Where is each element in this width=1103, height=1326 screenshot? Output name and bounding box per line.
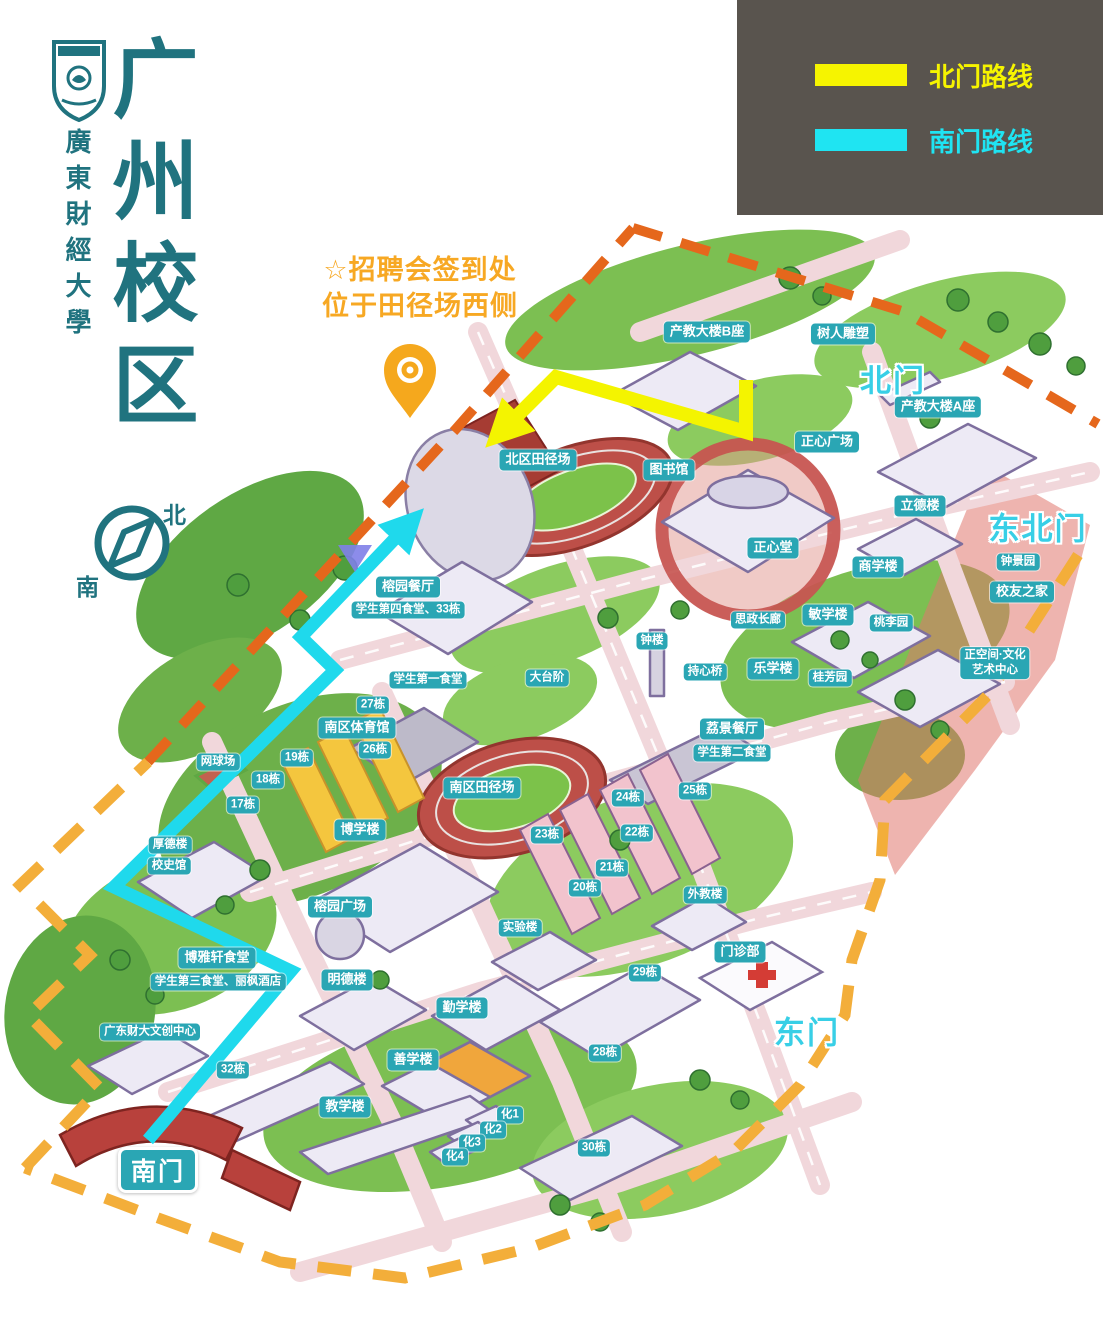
building-label: 桂芳园: [809, 670, 852, 687]
building-label: 门诊部: [714, 942, 765, 963]
building-label: 学生第二食堂: [694, 745, 771, 762]
building-label: 榕园餐厅: [376, 577, 440, 598]
building-label: 学生第三食堂、丽枫酒店: [151, 974, 286, 991]
building-label: 榕园广场: [308, 897, 372, 918]
building-label: 钟楼: [637, 633, 668, 650]
building-label: 17栋: [227, 797, 259, 814]
compass-north-label: 北: [163, 496, 186, 530]
building-label: 外教楼: [684, 887, 727, 904]
signin-annotation-line1: ☆招聘会签到处: [288, 252, 552, 288]
building-label: 乐学楼: [747, 659, 798, 680]
building-label: 21栋: [596, 860, 628, 877]
building-label: 30栋: [578, 1140, 610, 1157]
building-label: 18栋: [252, 772, 284, 789]
building-label: 学生第四食堂、33栋: [352, 602, 465, 619]
building-label: 思政长廊: [731, 612, 785, 629]
building-label: 厚德楼: [149, 837, 192, 854]
building-label: 大台阶: [526, 670, 569, 687]
building-label: 立德楼: [894, 496, 945, 517]
building-label: 产教大楼B座: [664, 322, 750, 343]
building-label: 图书馆: [643, 460, 694, 481]
building-label: 广东财大文创中心: [100, 1024, 200, 1041]
compass-south-label: 南: [76, 568, 99, 602]
legend-row-south: 南门路线: [815, 122, 1103, 159]
north-route-label: 北门路线: [929, 57, 1033, 94]
gate-label: 东北门: [989, 504, 1088, 549]
building-label: 22栋: [621, 825, 653, 842]
building-label: 化4: [442, 1149, 468, 1166]
building-label: 正空间·文化 艺术中心: [960, 647, 1029, 679]
signin-pin-icon: [384, 344, 436, 418]
signin-annotation: ☆招聘会签到处 位于田径场西侧: [288, 252, 552, 324]
building-label: 明德楼: [321, 970, 372, 991]
compass-icon: [98, 509, 166, 577]
legend-row-north: 北门路线: [815, 57, 1103, 94]
gate-label: 东门: [774, 1008, 840, 1053]
building-label: 32栋: [217, 1062, 249, 1079]
gate-label: 南门: [118, 1147, 198, 1193]
building-label: 钟景园: [997, 554, 1040, 571]
campus-title: 广州校区: [104, 34, 190, 442]
building-label: 正心广场: [795, 432, 859, 453]
north-route-swatch: [815, 64, 907, 86]
south-route-swatch: [815, 129, 907, 151]
building-label: 南区体育馆: [318, 718, 395, 739]
building-label: 26栋: [359, 742, 391, 759]
building-label: 南区田径场: [443, 778, 520, 799]
building-label: 博学楼: [334, 820, 385, 841]
building-label: 博雅轩食堂: [178, 948, 255, 969]
signin-annotation-line2: 位于田径场西侧: [288, 288, 552, 324]
building-label: 勤学楼: [436, 998, 487, 1019]
university-name: 廣東財經大學: [58, 128, 95, 344]
campus-map-page: 广州校区 廣東財經大學 北门路线 南门路线 ☆招聘会签到处 位于田径场西侧 北 …: [0, 0, 1103, 1326]
building-label: 27栋: [357, 697, 389, 714]
university-seal-logo: [54, 42, 104, 120]
building-label: 善学楼: [387, 1050, 438, 1071]
building-label: 校史馆: [148, 858, 191, 875]
south-route-label: 南门路线: [929, 122, 1033, 159]
building-label: 实验楼: [499, 920, 542, 937]
building-label: 桃李园: [870, 615, 913, 632]
gate-label: 北门: [860, 356, 926, 401]
building-label: 敏学楼: [802, 605, 853, 626]
building-label: 校友之家: [990, 582, 1054, 603]
building-label: 荔景餐厅: [700, 719, 764, 740]
building-label: 24栋: [612, 790, 644, 807]
route-legend: 北门路线 南门路线: [737, 0, 1103, 215]
building-label: 网球场: [197, 754, 240, 771]
building-label: 教学楼: [319, 1097, 370, 1118]
building-label: 持心桥: [684, 664, 727, 681]
building-label: 25栋: [679, 783, 711, 800]
building-label: 树人雕塑: [811, 324, 875, 345]
building-label: 28栋: [589, 1045, 621, 1062]
building-label: 19栋: [281, 750, 313, 767]
building-label: 23栋: [531, 827, 563, 844]
building-label: 29栋: [629, 965, 661, 982]
building-label: 北区田径场: [499, 450, 576, 471]
building-label: 20栋: [569, 880, 601, 897]
building-label: 学生第一食堂: [390, 672, 467, 689]
building-label: 商学楼: [852, 557, 903, 578]
building-label: 正心堂: [747, 538, 798, 559]
